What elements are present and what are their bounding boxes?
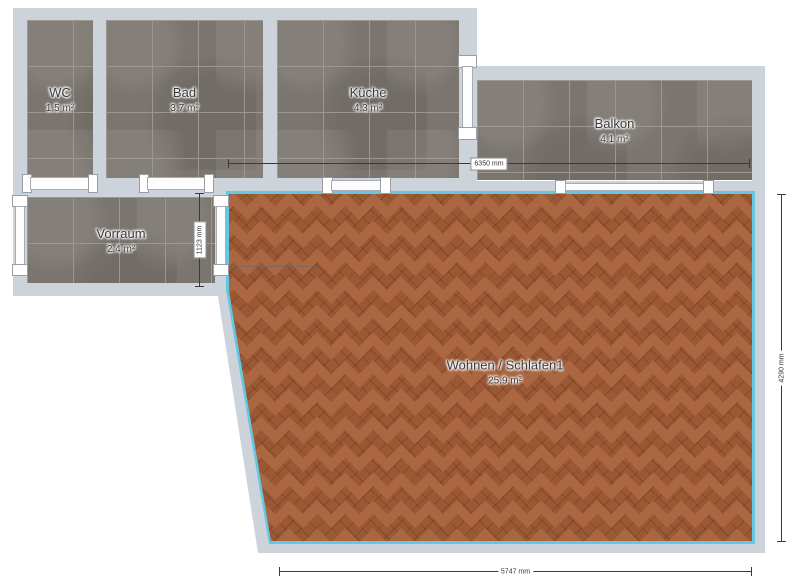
dimension-label-right: 4290 mm: [777, 350, 788, 385]
dimension-label-top: 6350 mm: [470, 158, 507, 171]
window-kueche-balkon[interactable]: [458, 55, 477, 140]
wall-balkon-right: [752, 66, 765, 186]
room-name: Bad: [170, 85, 198, 100]
room-label-vorraum: Vorraum 2.4 m²: [96, 226, 145, 255]
door-post: [213, 264, 229, 276]
door-vorraum-wohnen[interactable]: [213, 195, 229, 276]
room-area: 25.9 m²: [447, 376, 564, 387]
door-bad[interactable]: [139, 174, 214, 193]
dimension-top: 6350 mm: [228, 163, 750, 164]
door-leaf: [216, 206, 226, 265]
dimension-label-vorraum: 1123 mm: [194, 222, 207, 259]
door-wc[interactable]: [22, 174, 98, 193]
floor-plan-canvas: WC 1.5 m² Bad 3.7 m² Küche 4.3 m² Balkon…: [0, 0, 800, 587]
room-label-balkon: Balkon 4.1 m²: [595, 116, 635, 145]
room-label-wc: WC 1.5 m²: [46, 85, 74, 114]
dimension-tick: [279, 567, 280, 576]
room-area: 4.3 m²: [350, 103, 387, 114]
room-area: 2.4 m²: [96, 244, 145, 255]
room-area: 1.5 m²: [46, 103, 74, 114]
room-kueche[interactable]: Küche 4.3 m²: [277, 20, 459, 178]
window-post: [458, 127, 477, 140]
dimension-vorraum-height: 1123 mm: [199, 193, 200, 287]
door-post: [12, 264, 28, 276]
dimension-right: 4290 mm: [781, 194, 782, 542]
door-leaf: [15, 206, 25, 265]
dimension-tick: [777, 194, 786, 195]
wall-wc-bad: [93, 20, 106, 178]
door-leaf: [30, 177, 90, 190]
wall-top: [13, 8, 477, 20]
room-label-bad: Bad 3.7 m²: [170, 85, 198, 114]
room-area: 4.1 m²: [595, 134, 635, 145]
door-post: [88, 174, 98, 193]
wall-vorraum-bottom: [13, 283, 229, 296]
room-name: Küche: [350, 85, 387, 100]
room-name: Vorraum: [96, 226, 145, 241]
dimension-bottom: 5747 mm: [279, 571, 752, 572]
wall-balkon-top: [461, 66, 765, 80]
room-bad[interactable]: Bad 3.7 m²: [106, 20, 263, 178]
room-label-wohnen: Wohnen / Schlafen1 25.9 m²: [447, 358, 564, 387]
door-swing-line: [229, 266, 316, 267]
dimension-tick: [195, 286, 204, 287]
dimension-tick: [751, 567, 752, 576]
door-post: [204, 174, 214, 193]
room-name: Balkon: [595, 116, 635, 131]
dimension-tick: [195, 193, 204, 194]
door-post: [703, 180, 714, 194]
door-kueche[interactable]: [322, 177, 391, 194]
dimension-tick: [228, 159, 229, 168]
room-balkon[interactable]: Balkon 4.1 m²: [477, 80, 752, 180]
room-name: WC: [46, 85, 74, 100]
room-label-kueche: Küche 4.3 m²: [350, 85, 387, 114]
wall-bad-kueche: [263, 20, 277, 178]
door-post: [380, 177, 391, 194]
room-vorraum[interactable]: Vorraum 2.4 m²: [27, 197, 215, 283]
dimension-tick: [777, 541, 786, 542]
balcony-sliding-door[interactable]: [555, 180, 714, 194]
door-leaf: [147, 177, 206, 190]
room-wc[interactable]: WC 1.5 m²: [27, 20, 93, 178]
door-leaf: [565, 183, 704, 191]
entry-door-vorraum[interactable]: [12, 195, 28, 276]
room-area: 3.7 m²: [170, 103, 198, 114]
dimension-label-bottom: 5747 mm: [498, 567, 533, 578]
room-wohnen-schlafen[interactable]: Wohnen / Schlafen1 25.9 m²: [205, 178, 770, 558]
room-name: Wohnen / Schlafen1: [447, 358, 564, 373]
dimension-tick: [749, 159, 750, 168]
door-leaf: [331, 180, 382, 191]
window-leaf: [462, 66, 473, 129]
